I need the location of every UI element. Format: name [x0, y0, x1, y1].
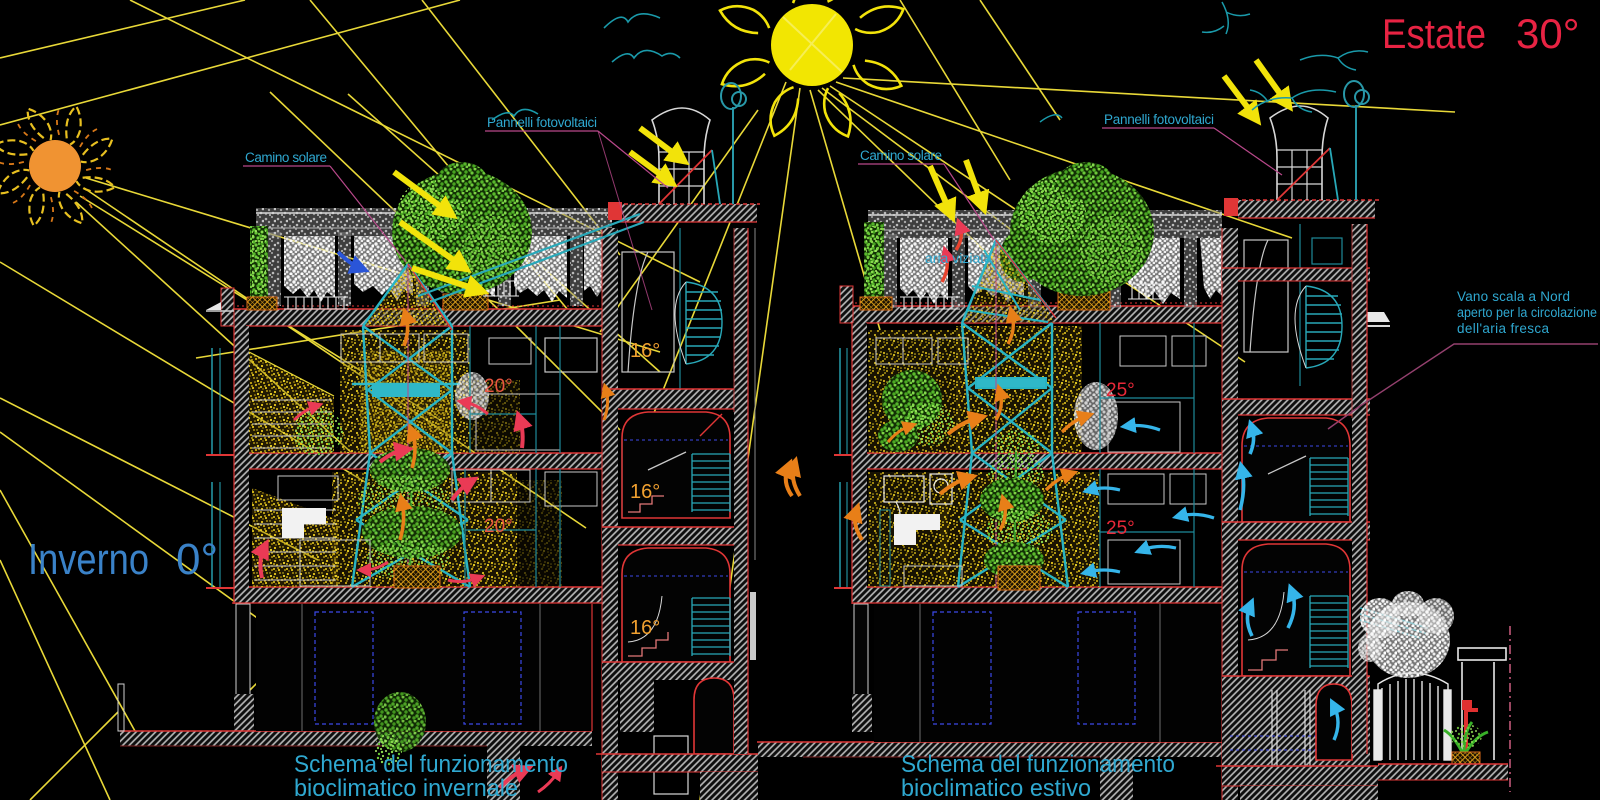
svg-text:Schema del funzionamento: Schema del funzionamento [901, 751, 1175, 778]
svg-text:Camino solare: Camino solare [245, 150, 327, 165]
svg-text:bioclimatico invernale: bioclimatico invernale [294, 775, 518, 800]
svg-text:dell'aria fresca: dell'aria fresca [1457, 321, 1549, 336]
svg-text:25°: 25° [1106, 380, 1135, 401]
svg-text:Pannelli fotovoltaici: Pannelli fotovoltaici [487, 115, 597, 130]
svg-text:30°: 30° [1516, 10, 1580, 57]
svg-text:Estate: Estate [1382, 10, 1486, 57]
svg-text:25°: 25° [1106, 518, 1135, 539]
svg-text:Pannelli fotovoltaici: Pannelli fotovoltaici [1104, 112, 1214, 127]
svg-text:20°: 20° [484, 516, 513, 537]
svg-text:16°: 16° [630, 340, 660, 362]
svg-text:Schema del funzionamento: Schema del funzionamento [294, 751, 568, 778]
svg-text:Inverno: Inverno [28, 535, 149, 584]
svg-text:16°: 16° [630, 481, 660, 503]
svg-text:16°: 16° [630, 617, 660, 639]
svg-text:aperto per la circolazione: aperto per la circolazione [1457, 305, 1597, 320]
svg-text:Camino solare: Camino solare [860, 148, 942, 163]
svg-text:Vano scala a Nord: Vano scala a Nord [1457, 289, 1570, 304]
svg-text:0°: 0° [176, 535, 218, 584]
svg-text:bioclimatico estivo: bioclimatico estivo [901, 775, 1091, 800]
svg-text:20°: 20° [484, 376, 513, 397]
svg-text:aria viziata: aria viziata [925, 250, 992, 266]
